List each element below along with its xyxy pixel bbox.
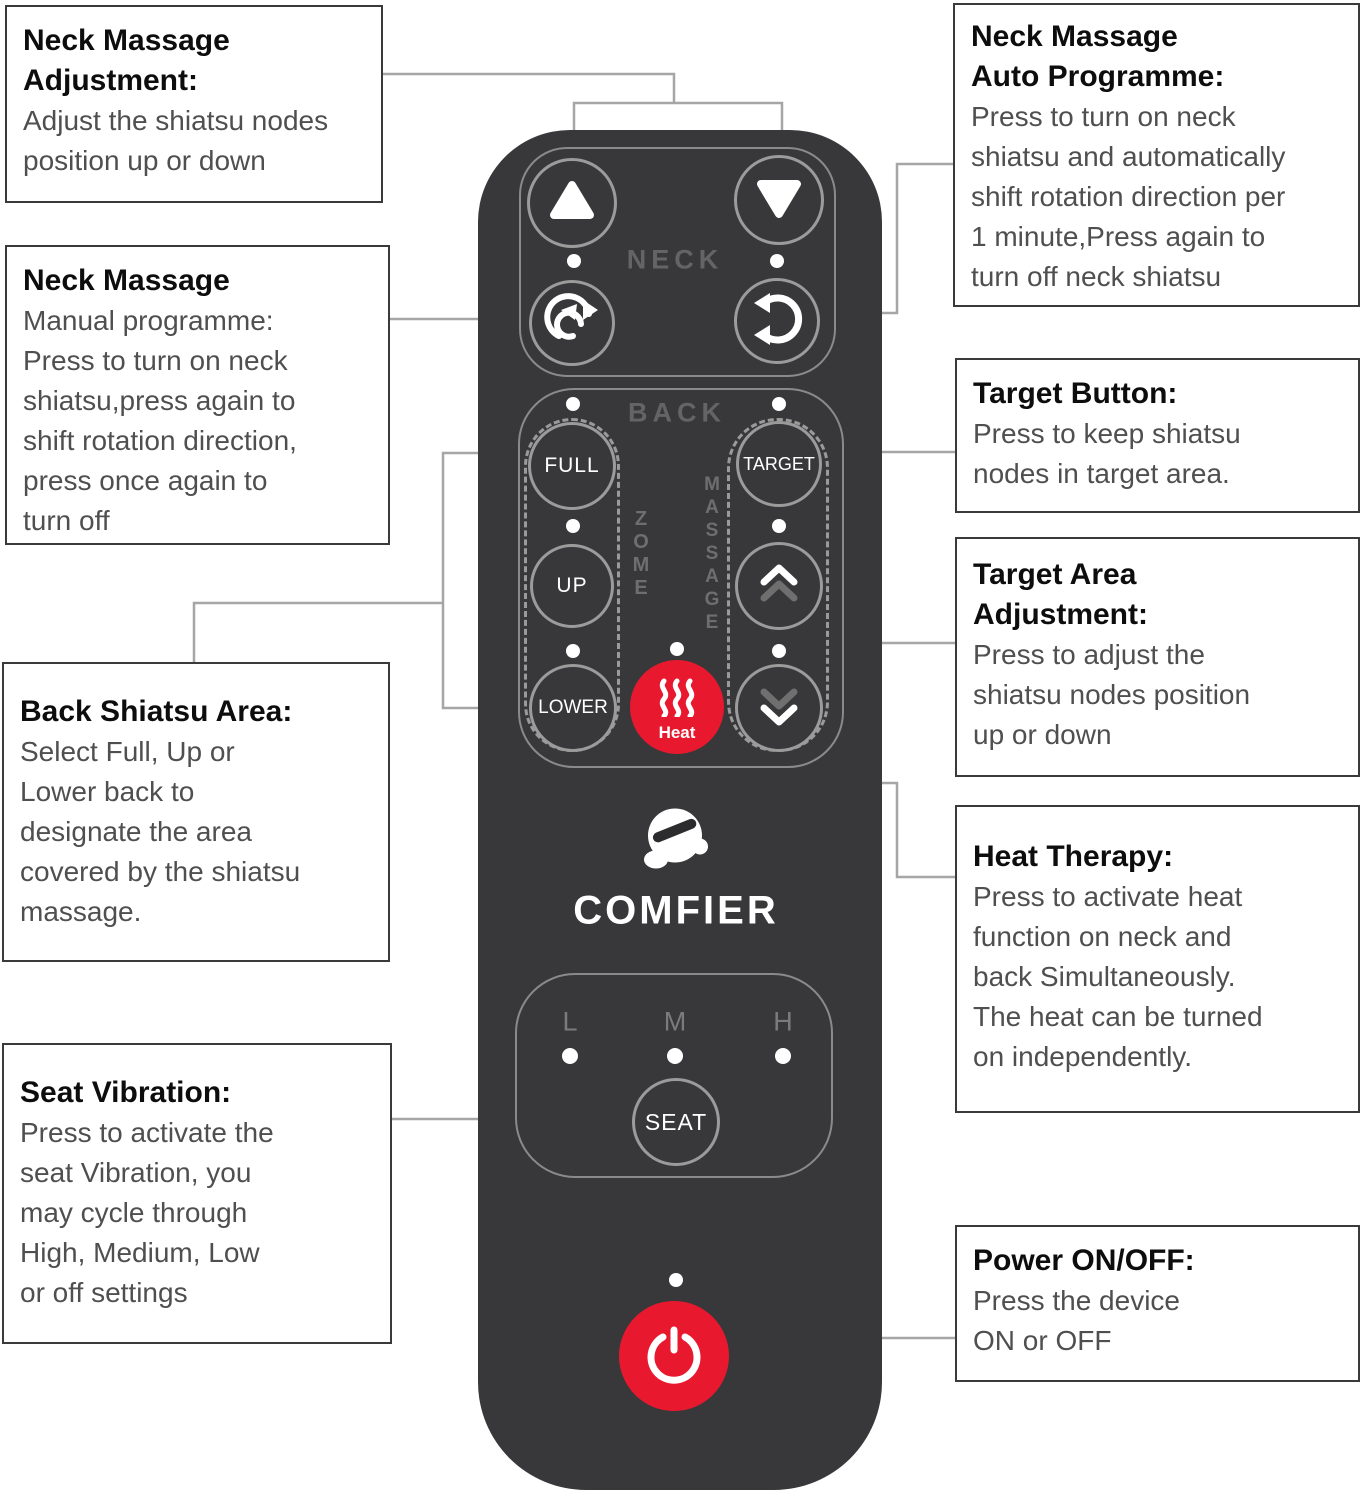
neck-down-led (770, 254, 784, 268)
neck-auto-button[interactable] (734, 278, 820, 364)
neck-up-button[interactable] (527, 158, 617, 248)
seat-button[interactable]: SEAT (632, 1078, 720, 1166)
target-led (772, 397, 786, 411)
neck-section-label: NECK (627, 245, 724, 276)
callout-title: Power ON/OFF: (973, 1241, 1358, 1281)
target-up-button[interactable] (735, 542, 823, 630)
lower-button-label: LOWER (538, 697, 608, 719)
callout-heat-therapy: Heat Therapy: Press to activate heat fun… (955, 805, 1360, 1113)
callout-neck-manual: Neck Massage Manual programme: Press to … (5, 245, 390, 545)
callout-body: Press to turn on neck shiatsu and automa… (971, 97, 1358, 297)
massage-vertical-label: M A S S A G E (704, 473, 720, 634)
callout-body: Press to keep shiatsu nodes in target ar… (973, 414, 1358, 494)
callout-seat-vibration: Seat Vibration: Press to activate the se… (2, 1043, 392, 1344)
heat-button[interactable]: Heat (630, 660, 724, 754)
callout-title: Heat Therapy: (973, 837, 1358, 877)
callout-body: Press to activate heat function on neck … (973, 877, 1358, 1077)
seat-level-low-label: L (562, 1007, 577, 1038)
rotate-ccw-icon (748, 290, 806, 353)
back-section-label: BACK (628, 398, 726, 429)
neck-down-icon (753, 174, 805, 227)
target-up-led (772, 519, 786, 533)
callout-power: Power ON/OFF: Press the device ON or OFF (955, 1225, 1360, 1382)
up-button[interactable]: UP (530, 544, 614, 628)
callout-title: Seat Vibration: (20, 1073, 390, 1113)
callout-title: Back Shiatsu Area: (20, 692, 388, 732)
diagram-canvas: NECK (0, 0, 1363, 1500)
lower-led (566, 644, 580, 658)
seat-level-medium-label: M (664, 1007, 687, 1038)
callout-target-button: Target Button: Press to keep shiatsu nod… (955, 358, 1360, 513)
target-down-button[interactable] (735, 664, 823, 752)
target-button[interactable]: TARGET (736, 421, 822, 507)
callout-body: Select Full, Up or Lower back to designa… (20, 732, 388, 932)
seat-low-led (562, 1048, 578, 1064)
chevron-up-icon (750, 556, 808, 617)
full-button[interactable]: FULL (528, 422, 616, 510)
heat-waves-icon (654, 677, 700, 722)
callout-body: Adjust the shiatsu nodes position up or … (23, 101, 381, 181)
callout-title: Target Button: (973, 374, 1358, 414)
target-button-label: TARGET (743, 454, 815, 475)
seat-button-label: SEAT (645, 1109, 707, 1136)
callout-target-area: Target Area Adjustment: Press to adjust … (955, 537, 1360, 777)
chevron-down-icon (750, 678, 808, 739)
full-button-label: FULL (544, 454, 599, 478)
callout-body: Press to activate the seat Vibration, yo… (20, 1113, 390, 1313)
lower-button[interactable]: LOWER (529, 664, 617, 752)
callout-body: Manual programme: Press to turn on neck … (23, 301, 388, 541)
full-led (566, 397, 580, 411)
callout-neck-auto: Neck Massage Auto Programme: Press to tu… (953, 3, 1360, 307)
callout-back-area: Back Shiatsu Area: Select Full, Up or Lo… (2, 662, 390, 962)
power-led (669, 1273, 683, 1287)
callout-title: Neck Massage (23, 261, 388, 301)
callout-title: Neck Massage Auto Programme: (971, 17, 1358, 97)
target-down-led (772, 644, 786, 658)
neck-up-led (567, 254, 581, 268)
neck-manual-button[interactable] (529, 280, 615, 366)
up-button-label: UP (556, 574, 587, 598)
neck-up-icon (546, 177, 598, 230)
heat-button-label: Heat (659, 723, 696, 743)
heat-led (670, 642, 684, 656)
rotate-cw-icon (543, 292, 601, 355)
callout-body: Press to adjust the shiatsu nodes positi… (973, 635, 1358, 755)
callout-body: Press the device ON or OFF (973, 1281, 1358, 1361)
callout-title: Target Area Adjustment: (973, 555, 1358, 635)
up-led (566, 519, 580, 533)
brand-logo: COMFIER (573, 889, 778, 934)
seat-level-high-label: H (773, 1007, 793, 1038)
callout-neck-adjustment: Neck Massage Adjustment: Adjust the shia… (5, 5, 383, 203)
neck-down-button[interactable] (734, 155, 824, 245)
mascot-icon (632, 802, 718, 883)
seat-medium-led (667, 1048, 683, 1064)
zone-vertical-label: Z O M E (633, 508, 650, 600)
power-icon (643, 1323, 705, 1390)
seat-high-led (775, 1048, 791, 1064)
callout-title: Neck Massage Adjustment: (23, 21, 381, 101)
power-button[interactable] (619, 1301, 729, 1411)
remote-control: NECK (478, 130, 882, 1490)
